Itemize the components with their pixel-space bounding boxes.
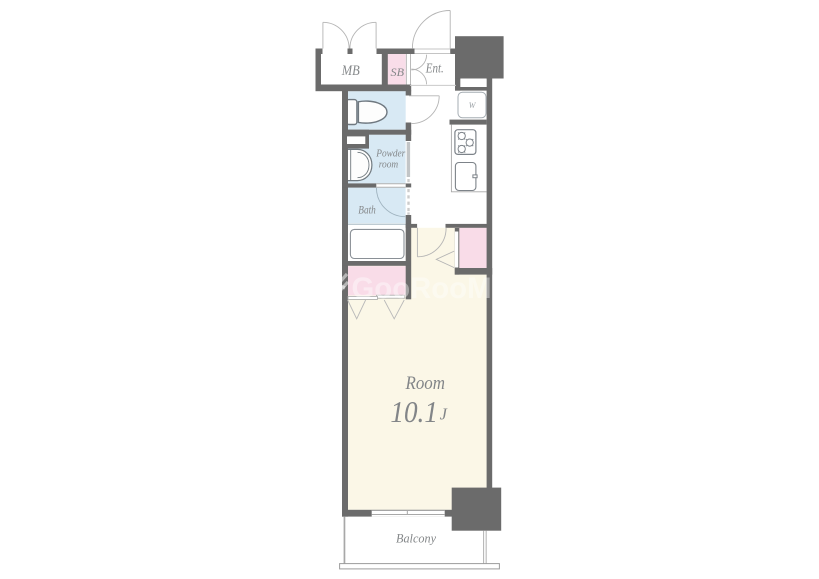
svg-text:J: J [440,405,448,424]
svg-text:10.1: 10.1 [390,394,438,429]
svg-text:Room: Room [405,374,445,394]
svg-text:room: room [379,159,399,171]
svg-text:GooRooM: GooRooM [352,272,492,305]
svg-text:Bath: Bath [358,202,376,216]
svg-text:SB: SB [391,65,405,79]
svg-text:Ent.: Ent. [425,61,444,76]
svg-text:MB: MB [341,63,360,79]
svg-text:Balcony: Balcony [396,530,436,545]
